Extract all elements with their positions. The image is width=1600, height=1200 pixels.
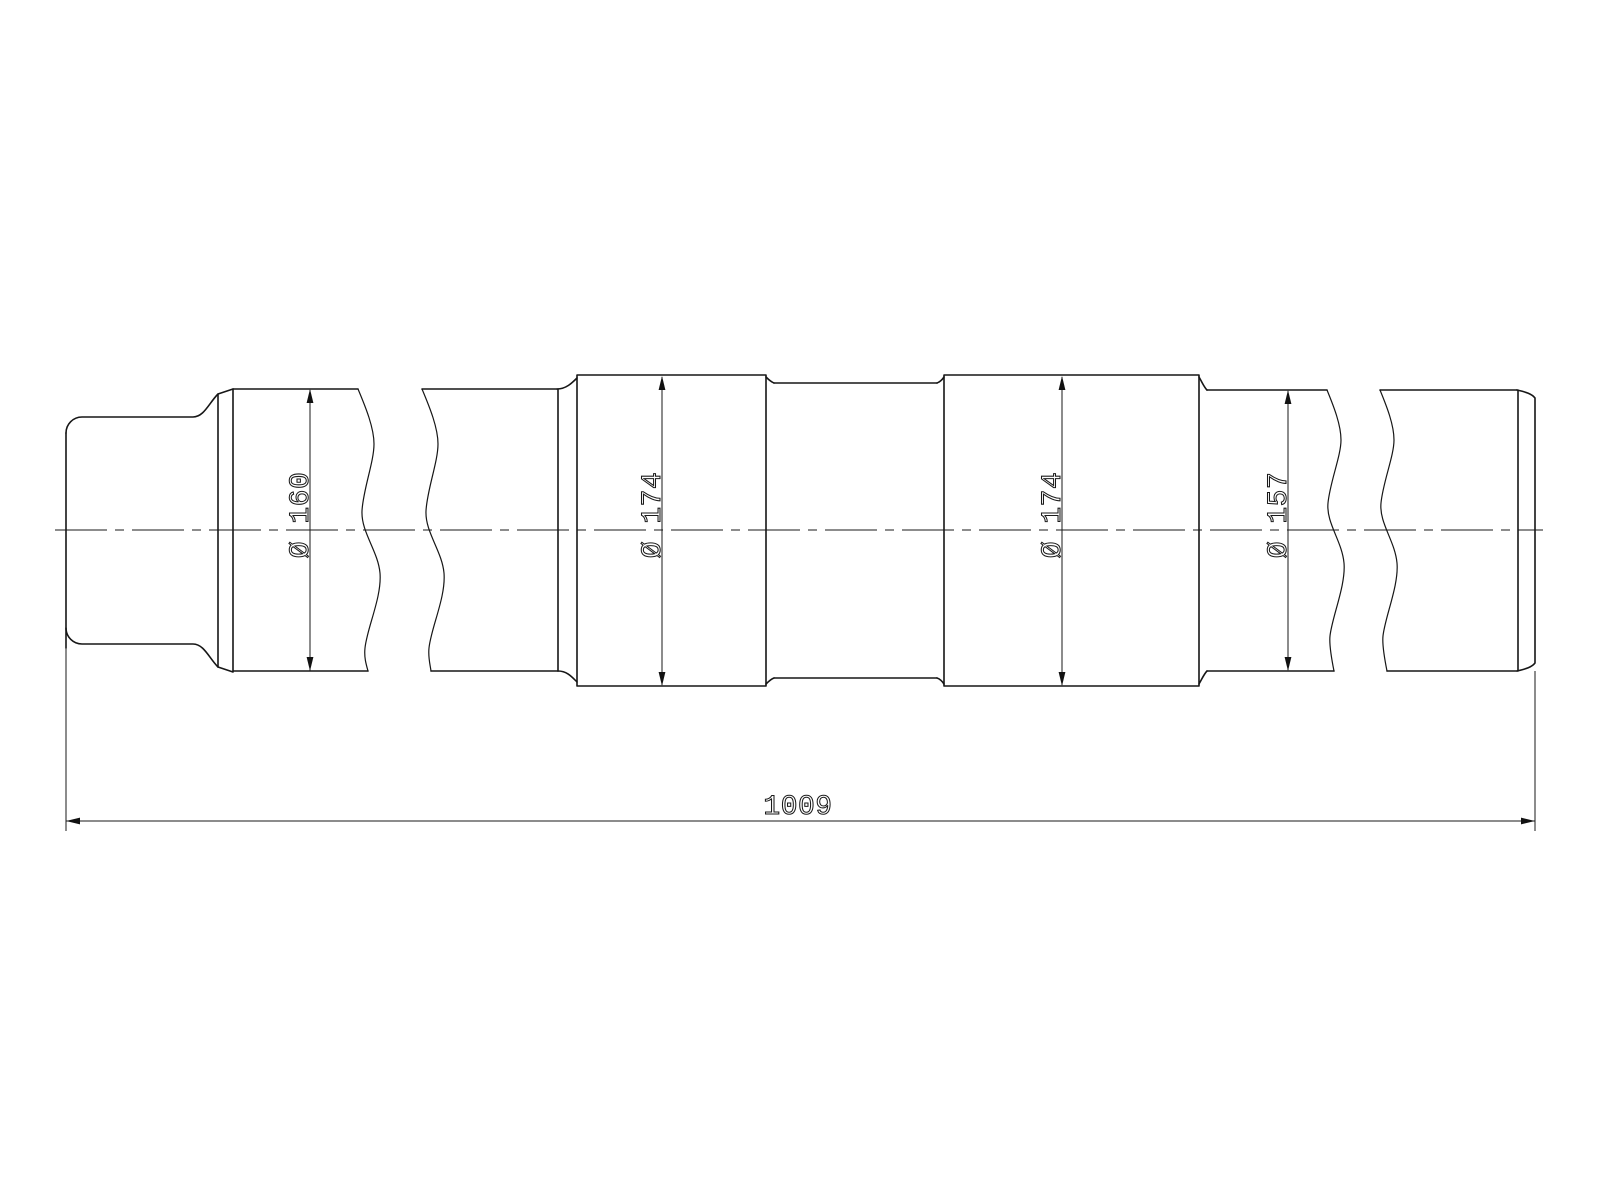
arrowhead-down xyxy=(1059,672,1066,686)
dim-label-overall-length: 1009 xyxy=(763,792,832,823)
seat1-right-fillet-top xyxy=(766,377,774,383)
seat2-right-fillet-bottom xyxy=(1199,671,1207,684)
middle-right-fillet-top xyxy=(937,377,944,383)
arrowhead-up xyxy=(1285,390,1292,404)
dim-diameter-160: Ø 160 xyxy=(286,389,317,671)
shaft-drawing-canvas: Ø 160 Ø 174 Ø 174 Ø 157 1009 xyxy=(0,0,1600,1200)
arrowhead-down xyxy=(1285,657,1292,671)
arrowhead-down xyxy=(307,657,314,671)
left-journal-bottom-edge xyxy=(66,628,233,672)
drawing-page: Ø 160 Ø 174 Ø 174 Ø 157 1009 xyxy=(0,0,1600,1200)
left-journal-top-edge xyxy=(66,389,233,433)
arrowhead-down xyxy=(659,672,666,686)
arrowhead-up xyxy=(307,389,314,403)
seat1-right-fillet-bottom xyxy=(766,678,774,684)
dim-label-dia-157: Ø 157 xyxy=(1264,472,1295,559)
fillet-up-to-seat1-bottom xyxy=(558,671,577,682)
dim-diameter-174-left: Ø 174 xyxy=(638,376,669,686)
dim-diameter-174-right: Ø 174 xyxy=(1038,376,1069,686)
arrowhead-left xyxy=(66,818,80,825)
dim-diameter-157: Ø 157 xyxy=(1264,390,1295,671)
dim-label-dia-174-left: Ø 174 xyxy=(638,472,669,559)
middle-right-fillet-bottom xyxy=(937,678,944,684)
arrowhead-up xyxy=(659,376,666,390)
dim-label-dia-160: Ø 160 xyxy=(286,472,317,559)
seat2-right-fillet-top xyxy=(1199,377,1207,390)
arrowhead-up xyxy=(1059,376,1066,390)
dim-overall-length: 1009 xyxy=(66,648,1535,831)
arrowhead-right xyxy=(1521,818,1535,825)
fillet-up-to-seat1-top xyxy=(557,378,577,389)
dim-label-dia-174-right: Ø 174 xyxy=(1038,472,1069,559)
